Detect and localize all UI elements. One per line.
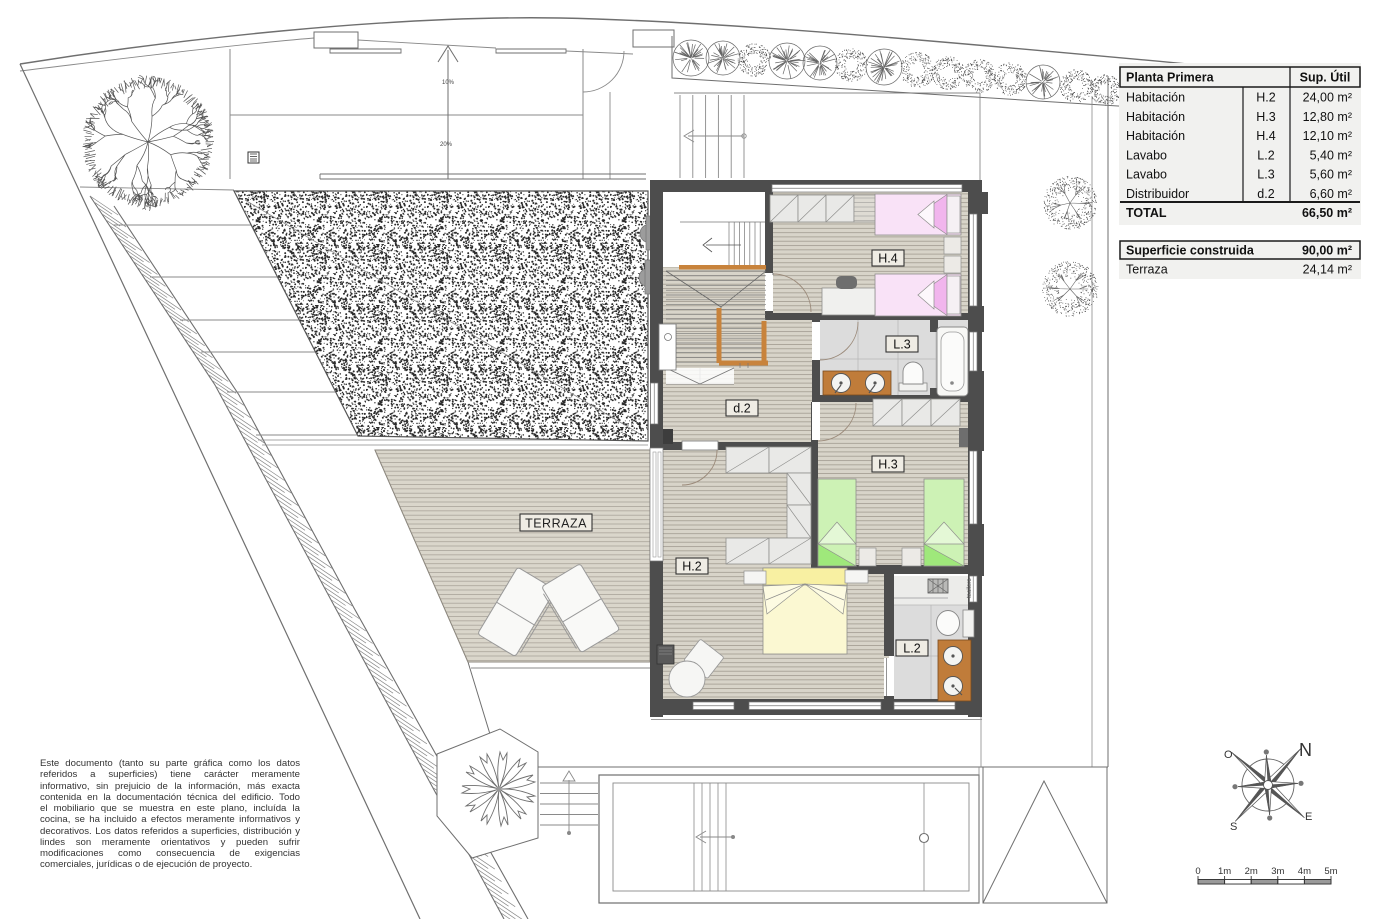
svg-text:L.2: L.2 <box>903 642 920 656</box>
svg-text:4m: 4m <box>1298 866 1311 877</box>
svg-text:Habitación: Habitación <box>1126 129 1185 143</box>
svg-text:H.2: H.2 <box>682 560 702 574</box>
svg-text:H.2: H.2 <box>1256 91 1276 105</box>
svg-text:E: E <box>1305 811 1312 823</box>
svg-text:L.2: L.2 <box>1257 148 1274 162</box>
svg-text:N: N <box>1299 740 1312 760</box>
svg-text:Superficie construida: Superficie construida <box>1126 244 1255 258</box>
svg-text:toallero: toallero <box>967 578 973 598</box>
svg-text:5,60 m²: 5,60 m² <box>1310 168 1352 182</box>
svg-text:12,80 m²: 12,80 m² <box>1303 110 1352 124</box>
svg-text:6,60 m²: 6,60 m² <box>1310 187 1352 201</box>
svg-text:Terraza: Terraza <box>1126 263 1168 277</box>
svg-text:d.2: d.2 <box>733 402 750 416</box>
svg-text:d.2: d.2 <box>1257 187 1274 201</box>
svg-text:S: S <box>1230 821 1237 833</box>
svg-text:H.4: H.4 <box>878 252 898 266</box>
svg-text:L.3: L.3 <box>1257 168 1274 182</box>
svg-text:66,50 m²: 66,50 m² <box>1302 206 1352 220</box>
svg-text:1m: 1m <box>1218 866 1231 877</box>
svg-text:L.3: L.3 <box>893 338 910 352</box>
svg-text:Lavabo: Lavabo <box>1126 168 1167 182</box>
svg-text:3m: 3m <box>1271 866 1284 877</box>
svg-text:Habitación: Habitación <box>1126 110 1185 124</box>
svg-text:Habitación: Habitación <box>1126 91 1185 105</box>
svg-text:H.3: H.3 <box>878 458 898 472</box>
svg-text:2m: 2m <box>1245 866 1258 877</box>
svg-text:O: O <box>1224 749 1233 761</box>
svg-text:Lavabo: Lavabo <box>1126 148 1167 162</box>
svg-text:H.4: H.4 <box>1256 129 1276 143</box>
svg-text:24,14 m²: 24,14 m² <box>1303 263 1352 277</box>
svg-text:24,00 m²: 24,00 m² <box>1303 91 1352 105</box>
svg-text:TOTAL: TOTAL <box>1126 206 1167 220</box>
svg-text:20%: 20% <box>440 142 453 148</box>
svg-text:5,40 m²: 5,40 m² <box>1310 148 1352 162</box>
svg-text:12,10 m²: 12,10 m² <box>1303 129 1352 143</box>
svg-text:90,00 m²: 90,00 m² <box>1302 244 1352 258</box>
svg-text:TERRAZA: TERRAZA <box>525 517 587 531</box>
svg-text:H.3: H.3 <box>1256 110 1276 124</box>
svg-text:0: 0 <box>1195 866 1200 877</box>
svg-text:Planta Primera: Planta Primera <box>1126 71 1215 85</box>
svg-text:5m: 5m <box>1324 866 1337 877</box>
svg-text:10%: 10% <box>442 80 455 86</box>
svg-text:Sup. Útil: Sup. Útil <box>1300 70 1351 85</box>
svg-text:Distribuidor: Distribuidor <box>1126 187 1189 201</box>
